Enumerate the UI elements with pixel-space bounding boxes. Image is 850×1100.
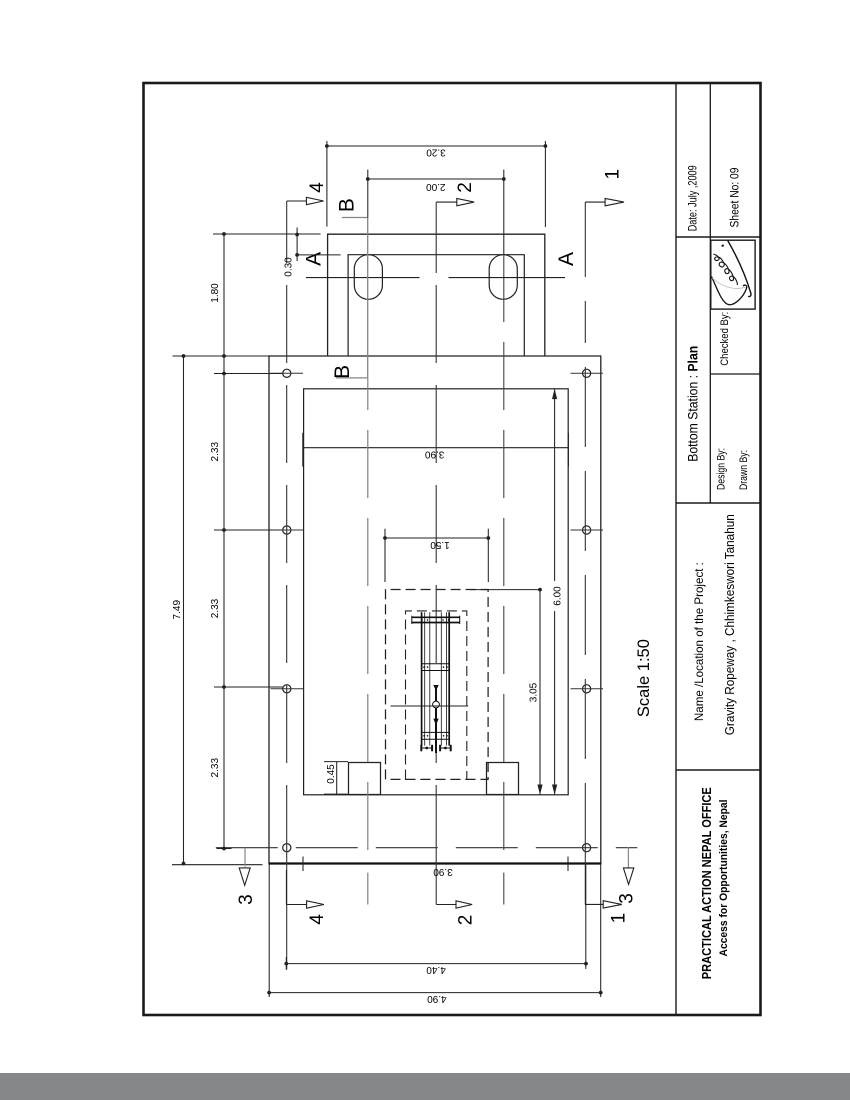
- svg-text:2: 2: [455, 182, 476, 193]
- svg-text:3.05: 3.05: [528, 682, 539, 702]
- svg-text:3: 3: [236, 894, 257, 905]
- svg-text:Design By:: Design By:: [716, 448, 728, 490]
- svg-text:Sheet No: 09: Sheet No: 09: [730, 168, 742, 228]
- svg-text:Name /Location of the Project: Name /Location of the Project :: [692, 562, 706, 721]
- svg-text:1.50: 1.50: [430, 539, 450, 550]
- svg-text:3.90: 3.90: [433, 866, 453, 877]
- svg-text:2.33: 2.33: [210, 758, 221, 778]
- svg-text:Bottom Station : Plan: Bottom Station : Plan: [685, 346, 701, 462]
- svg-text:6.00: 6.00: [553, 586, 564, 606]
- svg-text:A: A: [303, 252, 326, 266]
- svg-text:Date: July ,2009: Date: July ,2009: [686, 165, 700, 231]
- svg-text:2.33: 2.33: [210, 442, 221, 462]
- svg-text:3.20: 3.20: [426, 147, 446, 158]
- svg-text:Checked By:: Checked By:: [719, 312, 731, 366]
- svg-text:Gravity Ropeway , Chhimkeswor: Gravity Ropeway , Chhimkeswori Tanahun: [722, 514, 737, 735]
- svg-text:A: A: [555, 252, 578, 266]
- svg-text:1: 1: [602, 169, 623, 180]
- svg-text:2.00: 2.00: [426, 181, 446, 192]
- svg-text:3: 3: [617, 893, 638, 904]
- svg-text:B: B: [331, 365, 354, 379]
- svg-text:1.80: 1.80: [210, 283, 221, 303]
- svg-text:3.90: 3.90: [425, 449, 445, 460]
- svg-text:2.33: 2.33: [210, 598, 221, 618]
- svg-text:4: 4: [307, 914, 328, 925]
- svg-text:Access for Opportunities, Nepa: Access for Opportunities, Nepal: [718, 800, 730, 957]
- svg-text:1: 1: [608, 913, 629, 924]
- svg-text:B: B: [335, 198, 358, 212]
- svg-text:0.30: 0.30: [284, 257, 295, 277]
- svg-text:Drawn By:: Drawn By:: [738, 450, 750, 490]
- svg-text:4.40: 4.40: [426, 964, 446, 975]
- svg-text:Scale 1:50: Scale 1:50: [635, 639, 653, 717]
- svg-text:4.90: 4.90: [427, 993, 447, 1004]
- svg-text:2: 2: [455, 915, 476, 926]
- svg-text:0.45: 0.45: [326, 764, 337, 784]
- svg-text:PRACTICAL ACTION NEPAL OFFICE: PRACTICAL ACTION NEPAL OFFICE: [700, 787, 714, 979]
- svg-text:4: 4: [307, 182, 328, 193]
- svg-text:7.49: 7.49: [172, 600, 183, 620]
